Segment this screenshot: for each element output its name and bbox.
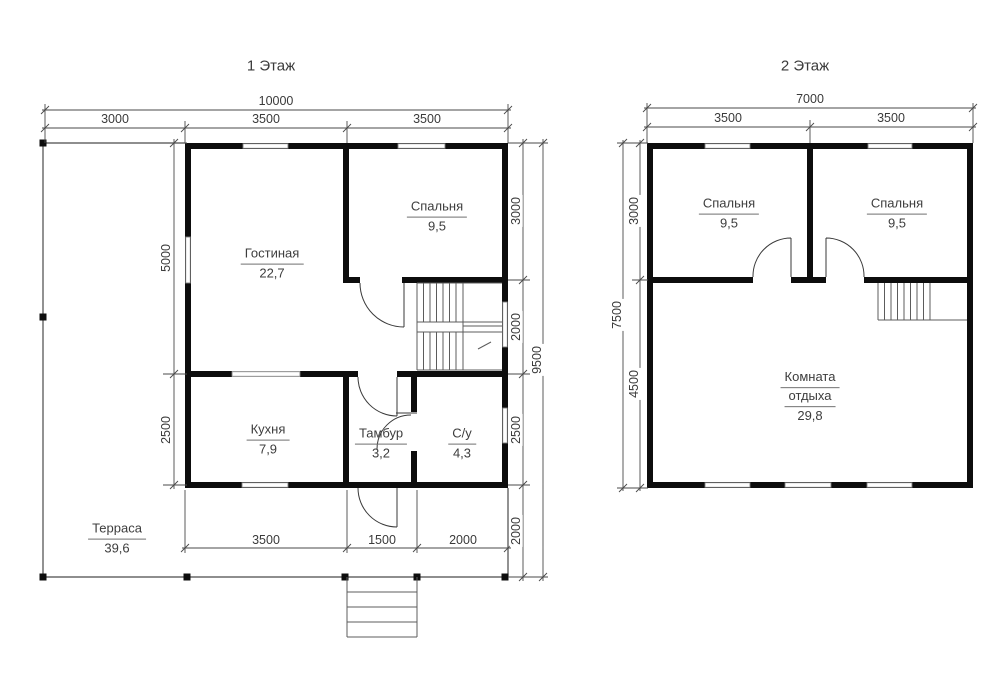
room-label-bedroom-f2-right: Спальня 9,5 — [867, 196, 927, 233]
dim-f1-top-seg3: 3500 — [411, 113, 443, 126]
dim-f1-right-seg2: 2000 — [510, 311, 523, 343]
dim-f1-total-height: 9500 — [531, 344, 544, 376]
dim-f2-left-seg1: 3000 — [628, 195, 641, 227]
room-label-living: Гостиная 22,7 — [241, 246, 304, 283]
floor1-title: 1 Этаж — [247, 58, 295, 75]
floor1-dimensions — [41, 104, 548, 581]
dim-f1-bottom-seg3: 2000 — [447, 534, 479, 547]
dim-f2-total-height: 7500 — [611, 299, 624, 331]
room-label-bathroom: С/у 4,3 — [448, 426, 476, 463]
dim-f1-right-seg1: 3000 — [510, 195, 523, 227]
room-label-bedroom-f2-left: Спальня 9,5 — [699, 196, 759, 233]
dim-f1-right-seg3: 2500 — [510, 414, 523, 446]
dim-f1-right-seg4: 2000 — [510, 515, 523, 547]
floor2-title: 2 Этаж — [781, 58, 829, 75]
room-label-vestibule: Тамбур 3,2 — [355, 426, 407, 463]
dim-f1-bottom-seg1: 3500 — [250, 534, 282, 547]
dim-f1-top-seg2: 3500 — [250, 113, 282, 126]
dim-f1-bottom-seg2: 1500 — [366, 534, 398, 547]
floor1-doors — [358, 283, 417, 527]
dim-f2-top-seg1: 3500 — [712, 112, 744, 125]
floorplan-canvas — [0, 0, 1000, 700]
room-label-bedroom-f1: Спальня 9,5 — [407, 199, 467, 236]
dim-f1-top-seg1: 3000 — [99, 113, 131, 126]
entrance-steps — [347, 577, 417, 637]
dim-f2-top-seg2: 3500 — [875, 112, 907, 125]
floor-plan-page: 1 Этаж 2 Этаж 10000 3000 3500 3500 5000 … — [0, 0, 1000, 700]
floor1-stairs — [417, 283, 502, 370]
dim-f1-left-seg2: 2500 — [160, 414, 173, 446]
dim-f1-left-seg1: 5000 — [160, 242, 173, 274]
room-label-kitchen: Кухня 7,9 — [247, 422, 290, 459]
dim-f1-total-width: 10000 — [257, 95, 296, 108]
room-label-lounge: Комната отдыха 29,8 — [781, 369, 840, 425]
room-label-terrace: Терраса 39,6 — [88, 521, 146, 558]
dim-f2-total-width: 7000 — [794, 93, 826, 106]
floor2-stairs — [878, 283, 967, 320]
dim-f2-left-seg2: 4500 — [628, 368, 641, 400]
